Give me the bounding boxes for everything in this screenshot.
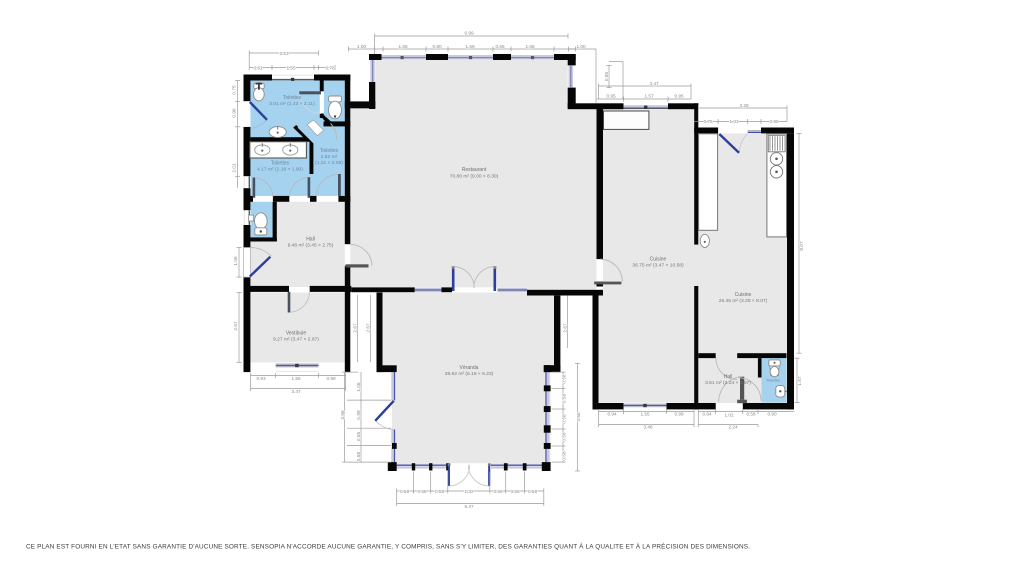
svg-text:8.07: 8.07 bbox=[799, 241, 804, 251]
svg-text:Cuisine: Cuisine bbox=[735, 292, 752, 298]
svg-text:Toilettes: Toilettes bbox=[766, 379, 780, 383]
svg-text:0.58: 0.58 bbox=[746, 411, 756, 416]
svg-text:1.57: 1.57 bbox=[644, 94, 654, 99]
svg-text:0.58: 0.58 bbox=[417, 489, 427, 494]
svg-text:1.03: 1.03 bbox=[729, 119, 739, 124]
svg-text:Hall: Hall bbox=[724, 374, 733, 380]
svg-text:0.58: 0.58 bbox=[435, 489, 445, 494]
svg-text:0.99: 0.99 bbox=[356, 410, 361, 420]
svg-text:9.27 m² (3.47 × 2.67): 9.27 m² (3.47 × 2.67) bbox=[273, 337, 319, 343]
svg-text:Restaurant: Restaurant bbox=[462, 167, 487, 173]
svg-text:0.90: 0.90 bbox=[767, 411, 777, 416]
svg-text:0.58: 0.58 bbox=[510, 489, 520, 494]
svg-text:0.95: 0.95 bbox=[606, 94, 616, 99]
svg-text:5.37: 5.37 bbox=[464, 504, 474, 509]
svg-text:0.58: 0.58 bbox=[493, 489, 503, 494]
svg-text:2.53: 2.53 bbox=[279, 51, 289, 56]
svg-text:0.99: 0.99 bbox=[326, 376, 336, 381]
svg-text:0.58: 0.58 bbox=[562, 414, 567, 424]
svg-text:CE PLAN EST FOURNI EN L'ETAT S: CE PLAN EST FOURNI EN L'ETAT SANS GARANT… bbox=[26, 542, 750, 551]
svg-text:0.95: 0.95 bbox=[769, 119, 779, 124]
svg-text:2.01: 2.01 bbox=[232, 163, 237, 173]
svg-text:6.99: 6.99 bbox=[464, 31, 474, 36]
svg-text:0.58: 0.58 bbox=[562, 432, 567, 442]
svg-text:0.75: 0.75 bbox=[232, 85, 237, 95]
svg-text:Hall: Hall bbox=[306, 237, 315, 243]
svg-text:2.67: 2.67 bbox=[563, 323, 568, 333]
svg-text:9.48 m² (3.45 × 2.75): 9.48 m² (3.45 × 2.75) bbox=[288, 243, 334, 249]
svg-text:Toilettes: Toilettes bbox=[283, 95, 302, 101]
svg-text:0.55: 0.55 bbox=[356, 432, 361, 442]
svg-text:1.02: 1.02 bbox=[724, 413, 734, 418]
svg-text:0.93: 0.93 bbox=[256, 376, 266, 381]
svg-text:0.99: 0.99 bbox=[674, 411, 684, 416]
svg-text:0.81: 0.81 bbox=[253, 65, 263, 70]
svg-text:(1.21 × 2.08): (1.21 × 2.08) bbox=[315, 160, 343, 166]
svg-text:0.58: 0.58 bbox=[400, 489, 410, 494]
svg-text:26.45 m² (3.28 × 8.07): 26.45 m² (3.28 × 8.07) bbox=[719, 298, 768, 304]
svg-text:1.57: 1.57 bbox=[797, 376, 802, 386]
svg-text:3.47: 3.47 bbox=[291, 389, 301, 394]
svg-text:3.28: 3.28 bbox=[739, 103, 749, 108]
svg-text:3.01 m² (1.43 × 2.11): 3.01 m² (1.43 × 2.11) bbox=[269, 101, 315, 107]
svg-text:Cuisine: Cuisine bbox=[650, 257, 667, 263]
svg-text:1.65: 1.65 bbox=[398, 44, 408, 49]
svg-text:1.55: 1.55 bbox=[286, 65, 296, 70]
svg-text:2.67: 2.67 bbox=[366, 323, 371, 333]
svg-text:0.58: 0.58 bbox=[528, 489, 538, 494]
svg-text:0.78: 0.78 bbox=[325, 65, 335, 70]
svg-text:1.32: 1.32 bbox=[464, 489, 474, 494]
svg-text:1.55: 1.55 bbox=[291, 376, 301, 381]
svg-text:0.58: 0.58 bbox=[562, 394, 567, 404]
svg-text:Véranda: Véranda bbox=[460, 365, 479, 371]
svg-text:Vestibule: Vestibule bbox=[286, 331, 307, 337]
svg-text:Toilettes: Toilettes bbox=[271, 161, 290, 167]
svg-text:1.06: 1.06 bbox=[233, 256, 238, 266]
svg-text:0.58: 0.58 bbox=[562, 451, 567, 461]
svg-text:3.47: 3.47 bbox=[649, 81, 659, 86]
svg-text:70.80 m² (9.00 × 8.30): 70.80 m² (9.00 × 8.30) bbox=[450, 173, 499, 179]
svg-text:1.00: 1.00 bbox=[357, 44, 367, 49]
svg-text:1.55: 1.55 bbox=[640, 411, 650, 416]
svg-text:0.85: 0.85 bbox=[604, 72, 609, 82]
svg-text:1.66: 1.66 bbox=[525, 44, 535, 49]
svg-text:1.00: 1.00 bbox=[576, 44, 586, 49]
svg-text:0.96: 0.96 bbox=[232, 108, 237, 118]
svg-text:0.94: 0.94 bbox=[607, 411, 617, 416]
svg-text:38.62 m² (6.18 × 6.23): 38.62 m² (6.18 × 6.23) bbox=[445, 371, 494, 377]
svg-text:3.48: 3.48 bbox=[643, 424, 653, 429]
svg-text:3.56: 3.56 bbox=[576, 412, 581, 422]
svg-text:0.65: 0.65 bbox=[495, 44, 505, 49]
svg-text:2.24: 2.24 bbox=[728, 424, 738, 429]
svg-text:1.69: 1.69 bbox=[465, 44, 475, 49]
svg-text:36.75 m² (3.47 × 10.58): 36.75 m² (3.47 × 10.58) bbox=[632, 263, 684, 269]
svg-text:0.64: 0.64 bbox=[702, 411, 712, 416]
svg-text:0.75: 0.75 bbox=[703, 119, 713, 124]
svg-text:3.51 m² (2.24 × 1.57): 3.51 m² (2.24 × 1.57) bbox=[705, 380, 751, 386]
svg-text:3.56: 3.56 bbox=[340, 410, 345, 420]
svg-text:2.67: 2.67 bbox=[233, 321, 238, 331]
svg-text:0.58: 0.58 bbox=[356, 452, 361, 462]
svg-text:0.58: 0.58 bbox=[562, 374, 567, 384]
svg-text:Toilettes: Toilettes bbox=[320, 148, 339, 154]
svg-text:2.52 m²: 2.52 m² bbox=[321, 154, 338, 160]
svg-text:4.17 m² (2.19 × 1.90): 4.17 m² (2.19 × 1.90) bbox=[257, 167, 303, 173]
svg-text:0.95: 0.95 bbox=[674, 94, 684, 99]
svg-text:1.06: 1.06 bbox=[356, 382, 361, 392]
svg-text:0.80: 0.80 bbox=[432, 44, 442, 49]
svg-text:2.67: 2.67 bbox=[353, 323, 358, 333]
